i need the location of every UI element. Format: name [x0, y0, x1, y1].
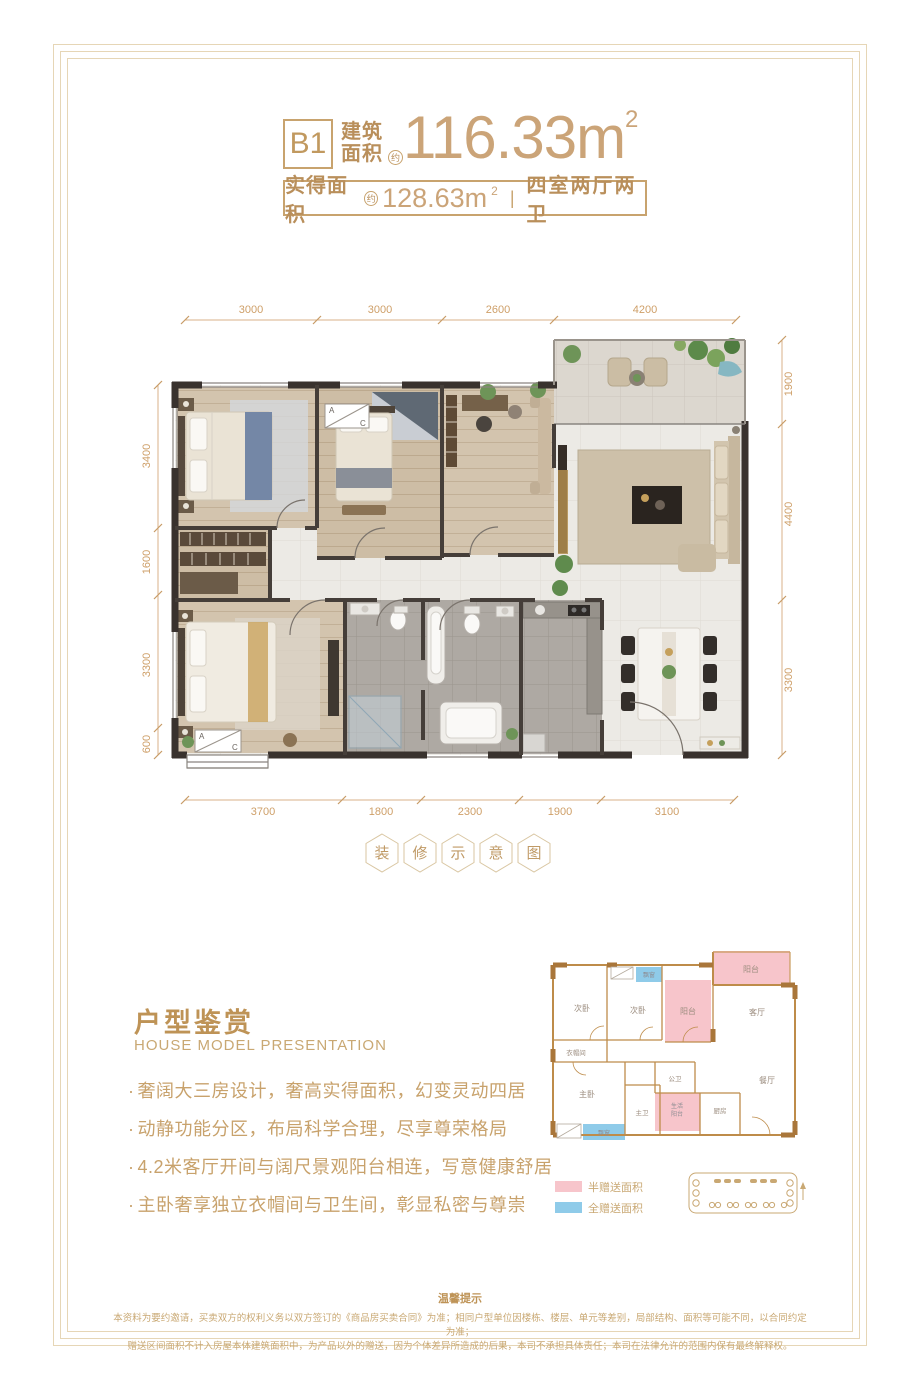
- actual-area-box: 实得面积 约 128.63m 2 | 四室两厅两卫: [283, 180, 647, 216]
- svg-text:厨房: 厨房: [714, 1106, 727, 1115]
- svg-text:客厅: 客厅: [749, 1007, 765, 1017]
- svg-text:A: A: [329, 406, 335, 415]
- disclaimer-title: 温馨提示: [110, 1290, 810, 1306]
- plant-icon: [563, 345, 581, 363]
- plant-icon: [555, 555, 573, 573]
- svg-text:600: 600: [141, 735, 153, 753]
- floorplan-brochure-page: B1 建筑 面积 约 116.33m 2 实得面积 约 128.63m 2 | …: [0, 0, 919, 1400]
- schematic-svg: 次卧 次卧 阳台 阳台 客厅 衣帽间 主卧 主卫 公卫 生活 阳台 厨房 餐厅 …: [545, 945, 805, 1180]
- half-gift-label: 半赠送面积: [588, 1179, 643, 1195]
- svg-text:3100: 3100: [655, 806, 679, 818]
- hex-stamp: 装: [365, 833, 399, 873]
- legend-row-half-gift: 半赠送面积: [555, 1179, 643, 1194]
- full-gift-swatch: [555, 1202, 582, 1213]
- svg-text:3000: 3000: [368, 304, 392, 316]
- svg-text:4200: 4200: [633, 304, 657, 316]
- svg-text:1900: 1900: [783, 372, 795, 396]
- plant-icon: [480, 384, 496, 400]
- plant-icon: [182, 736, 194, 748]
- svg-text:公卫: 公卫: [669, 1075, 683, 1083]
- toilet-icon: [464, 614, 480, 634]
- disclaimer-line1: 本资料为要约邀请，买卖双方的权利义务以双方签订的《商品房买卖合同》为准；相同户型…: [110, 1312, 810, 1340]
- svg-text:3400: 3400: [141, 444, 153, 468]
- dining-chair: [703, 636, 717, 655]
- legend-row-full-gift: 全赠送面积: [555, 1200, 643, 1215]
- svg-text:3300: 3300: [141, 653, 153, 677]
- desk-chair: [476, 416, 492, 432]
- approx-badge-2: 约: [364, 191, 378, 206]
- unit-label: B1: [290, 127, 327, 161]
- svg-text:装: 装: [374, 845, 389, 862]
- actual-area-superscript: 2: [491, 184, 498, 198]
- area-type-line1: 建筑: [341, 121, 383, 143]
- study-sofa: [538, 398, 551, 494]
- built-area-superscript: 2: [625, 106, 638, 134]
- dining-chair: [703, 692, 717, 711]
- hex-stamp: 意: [479, 833, 513, 873]
- dresser-icon: [328, 640, 339, 716]
- unit-badge: B1: [283, 119, 333, 169]
- svg-text:生活: 生活: [671, 1102, 683, 1110]
- north-arrow-icon: [800, 1182, 806, 1200]
- svg-text:2600: 2600: [486, 304, 510, 316]
- svg-text:飘窗: 飘窗: [598, 1129, 610, 1137]
- svg-text:1600: 1600: [141, 550, 153, 574]
- svg-text:衣帽间: 衣帽间: [566, 1048, 586, 1057]
- bed-headboard: [178, 416, 185, 496]
- svg-text:主卧: 主卧: [579, 1089, 595, 1099]
- approx-badge: 约: [388, 150, 403, 165]
- decor-screen: [558, 470, 568, 554]
- svg-text:A: A: [199, 732, 205, 741]
- section-title: 户型鉴赏: [134, 1001, 254, 1040]
- header-divider: |: [510, 188, 515, 209]
- svg-text:C: C: [360, 419, 366, 428]
- hex-stamp: 修: [403, 833, 437, 873]
- ac-box-top: A C: [325, 404, 369, 428]
- hex-stamp: 示: [441, 833, 475, 873]
- bullet-mark: ·: [128, 1195, 135, 1215]
- sofa-back: [728, 436, 740, 564]
- plant-icon: [552, 580, 568, 596]
- motif-flowers: [693, 1180, 793, 1206]
- half-gift-swatch: [555, 1181, 582, 1192]
- built-area-value: 116.33m: [403, 103, 625, 172]
- bullet-mark: ·: [128, 1081, 135, 1101]
- floor-plan-svg: A C A C 3000 3000 2600 4200 3400: [140, 300, 800, 830]
- schematic-floor-plan: 次卧 次卧 阳台 阳台 客厅 衣帽间 主卧 主卫 公卫 生活 阳台 厨房 餐厅 …: [545, 945, 805, 1180]
- svg-text:2300: 2300: [458, 806, 482, 818]
- motif-svg: [688, 1172, 808, 1216]
- bullet-mark: ·: [128, 1119, 135, 1139]
- svg-text:3000: 3000: [239, 304, 263, 316]
- actual-area-value: 128.63m: [382, 183, 487, 214]
- hex-stamp: 图: [517, 833, 551, 873]
- bed-headboard: [178, 628, 185, 716]
- area-type-line2: 面积: [341, 143, 383, 165]
- svg-text:1900: 1900: [548, 806, 572, 818]
- dining-chair: [621, 636, 635, 655]
- study-floor: [442, 387, 554, 555]
- section-subtitle: HOUSE MODEL PRESENTATION: [134, 1037, 387, 1054]
- motif-chairs-bottom: [709, 1202, 786, 1207]
- svg-text:次卧: 次卧: [630, 1005, 646, 1015]
- bullet-mark: ·: [128, 1157, 135, 1177]
- gift-area-legend: 半赠送面积 全赠送面积: [555, 1179, 643, 1221]
- ac-box-bottom: A C: [195, 730, 241, 752]
- svg-text:主卫: 主卫: [636, 1108, 650, 1117]
- full-gift-label: 全赠送面积: [588, 1200, 643, 1216]
- disclaimer-line2: 赠送区间面积不计入房屋本体建筑面积中，为产品以外的赠送，因为个体差异所造成的后果…: [110, 1340, 810, 1354]
- svg-text:C: C: [232, 743, 238, 752]
- lounge-chair: [608, 358, 631, 386]
- svg-text:阳台: 阳台: [680, 1006, 696, 1016]
- selling-points-list: ·奢阔大三房设计，奢高实得面积，幻变灵动四居 ·动静功能分区，布局科学合理，尽享…: [128, 1072, 553, 1224]
- banquet-table-motif: [688, 1172, 808, 1216]
- selling-point: ·主卧奢享独立衣帽间与卫生间，彰显私密与尊崇: [128, 1186, 553, 1224]
- svg-text:餐厅: 餐厅: [759, 1076, 775, 1085]
- actual-area-label: 实得面积: [285, 169, 360, 227]
- svg-text:3300: 3300: [783, 668, 795, 692]
- main-floor-plan: A C A C 3000 3000 2600 4200 3400: [140, 300, 800, 830]
- bedroom1-furniture: [178, 398, 308, 513]
- selling-point: ·动静功能分区，布局科学合理，尽享尊荣格局: [128, 1110, 553, 1148]
- dining-chair: [621, 664, 635, 683]
- selling-point: ·奢阔大三房设计，奢高实得面积，幻变灵动四居: [128, 1072, 553, 1110]
- svg-text:阳台: 阳台: [671, 1110, 683, 1118]
- svg-text:4400: 4400: [783, 502, 795, 526]
- svg-text:图: 图: [526, 845, 541, 862]
- svg-text:阳台: 阳台: [743, 964, 759, 974]
- decoration-stamp-row: 装 修 示 意 图: [365, 833, 551, 873]
- dining-chair: [703, 664, 717, 683]
- svg-text:次卧: 次卧: [574, 1003, 590, 1013]
- area-type-label: 建筑 面积: [341, 121, 383, 165]
- plant-icon: [506, 728, 518, 740]
- lounge-chair: [644, 358, 667, 386]
- fridge-icon: [523, 734, 545, 752]
- bed-bench: [342, 505, 386, 515]
- svg-text:3700: 3700: [251, 806, 275, 818]
- svg-text:修: 修: [412, 845, 427, 862]
- svg-text:意: 意: [488, 844, 503, 862]
- armchair-icon: [678, 544, 716, 572]
- room-configuration: 四室两厅两卫: [527, 169, 645, 227]
- disclaimer: 温馨提示 本资料为要约邀请，买卖双方的权利义务以双方签订的《商品房买卖合同》为准…: [110, 1290, 810, 1354]
- svg-text:示: 示: [450, 845, 465, 862]
- svg-text:飘窗: 飘窗: [643, 971, 655, 979]
- svg-text:1800: 1800: [369, 806, 393, 818]
- selling-point: ·4.2米客厅开间与阔尺景观阳台相连，写意健康舒居: [128, 1148, 553, 1186]
- motif-chairs-top: [714, 1179, 777, 1183]
